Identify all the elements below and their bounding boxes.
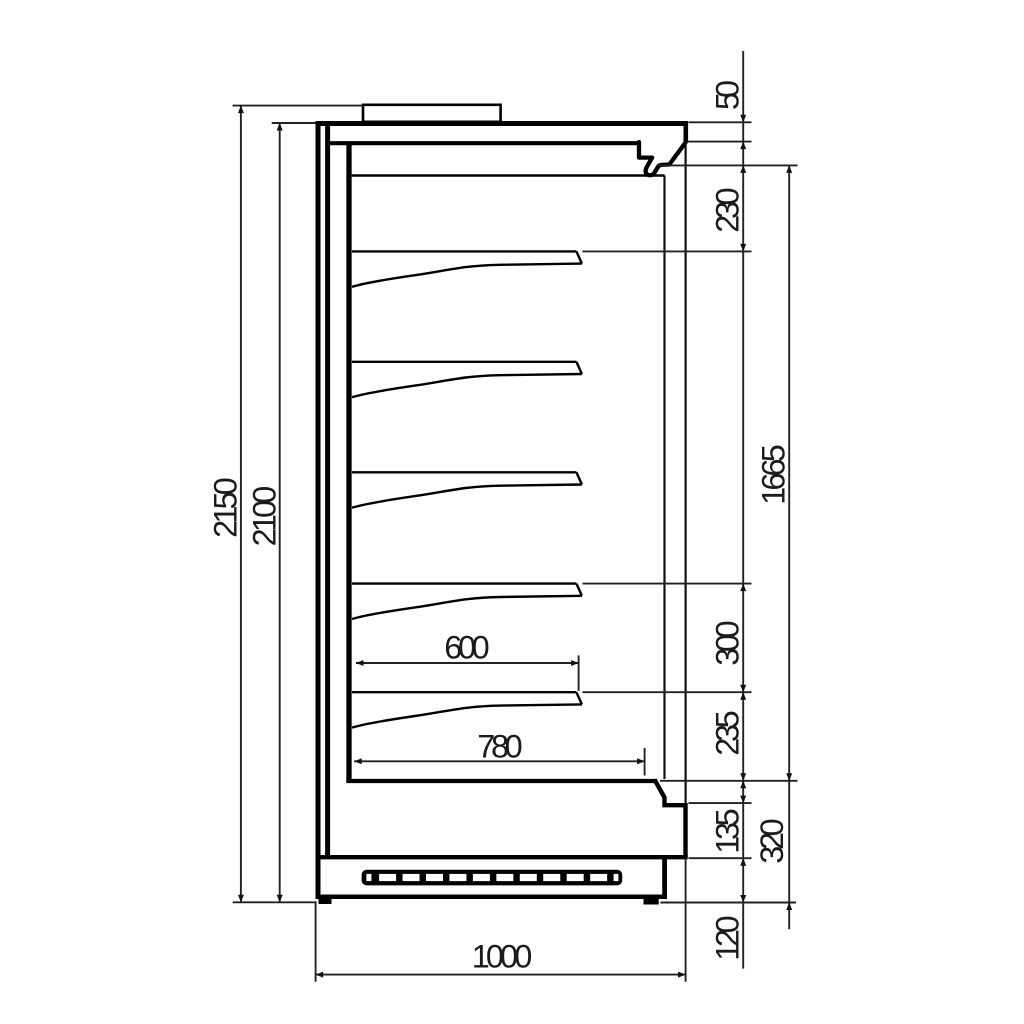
svg-text:1000: 1000 <box>472 939 533 975</box>
svg-text:300: 300 <box>710 620 746 665</box>
svg-text:780: 780 <box>477 729 522 765</box>
svg-text:600: 600 <box>444 630 489 666</box>
svg-text:135: 135 <box>710 808 746 853</box>
svg-text:1665: 1665 <box>756 444 792 505</box>
svg-text:320: 320 <box>754 818 790 863</box>
svg-text:50: 50 <box>710 80 746 110</box>
svg-text:230: 230 <box>710 187 746 232</box>
svg-text:2100: 2100 <box>247 486 283 547</box>
svg-text:235: 235 <box>710 710 746 755</box>
svg-text:120: 120 <box>710 915 746 960</box>
svg-text:2150: 2150 <box>208 477 244 538</box>
